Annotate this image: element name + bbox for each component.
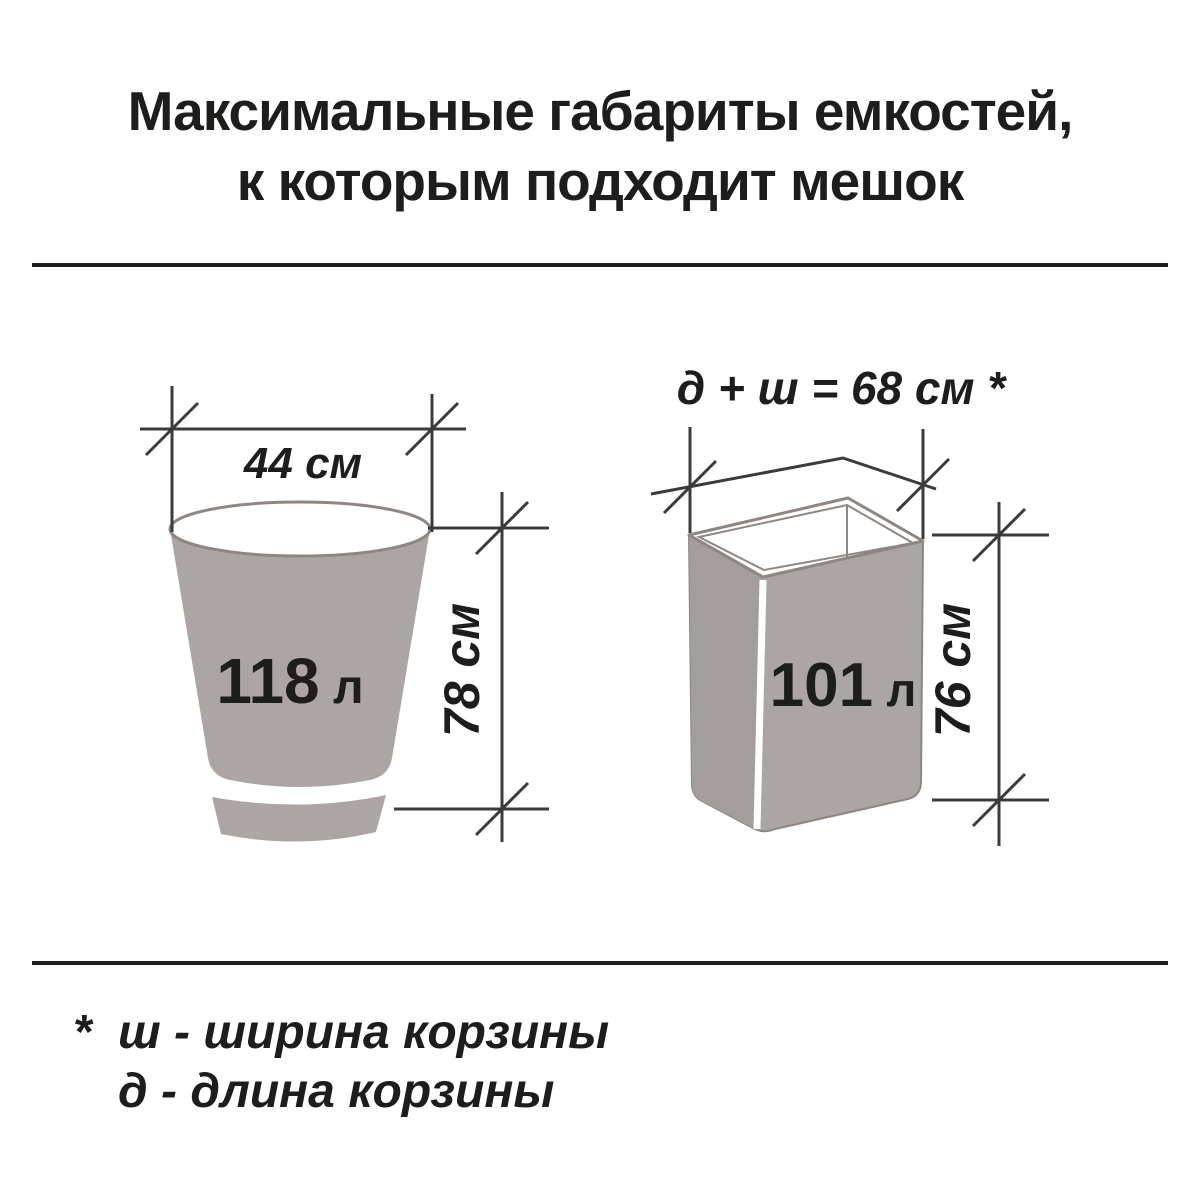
footnote-line-1: * ш - ширина корзины	[73, 1003, 609, 1062]
bucket-width-label: 44 см	[243, 439, 362, 488]
bucket-diagram: 118 л	[170, 502, 430, 842]
basket-height-dimension: 76 см	[925, 502, 1049, 846]
dimension-line	[651, 458, 936, 494]
footnote-line-1-text: ш - ширина корзины	[118, 1003, 609, 1062]
basket-left-face	[689, 535, 763, 830]
footnote-line-2-text: д - длина корзины	[118, 1062, 554, 1121]
basket-formula-label: д + ш = 68 см *	[677, 362, 1008, 414]
footnote-marker: *	[73, 1003, 118, 1062]
bucket-height-label: 78 см	[434, 603, 490, 737]
footnote: * ш - ширина корзины д - длина корзины	[73, 1003, 609, 1121]
bucket-base	[212, 795, 386, 842]
basket-height-label: 76 см	[925, 603, 981, 737]
basket-diagram: 101 л	[689, 498, 923, 831]
bucket-rim-opening	[170, 502, 430, 556]
infographic-page: Максимальные габариты емкостей, к которы…	[0, 0, 1200, 1200]
bottom-divider	[32, 961, 1168, 965]
footnote-line-2: д - длина корзины	[118, 1062, 609, 1121]
